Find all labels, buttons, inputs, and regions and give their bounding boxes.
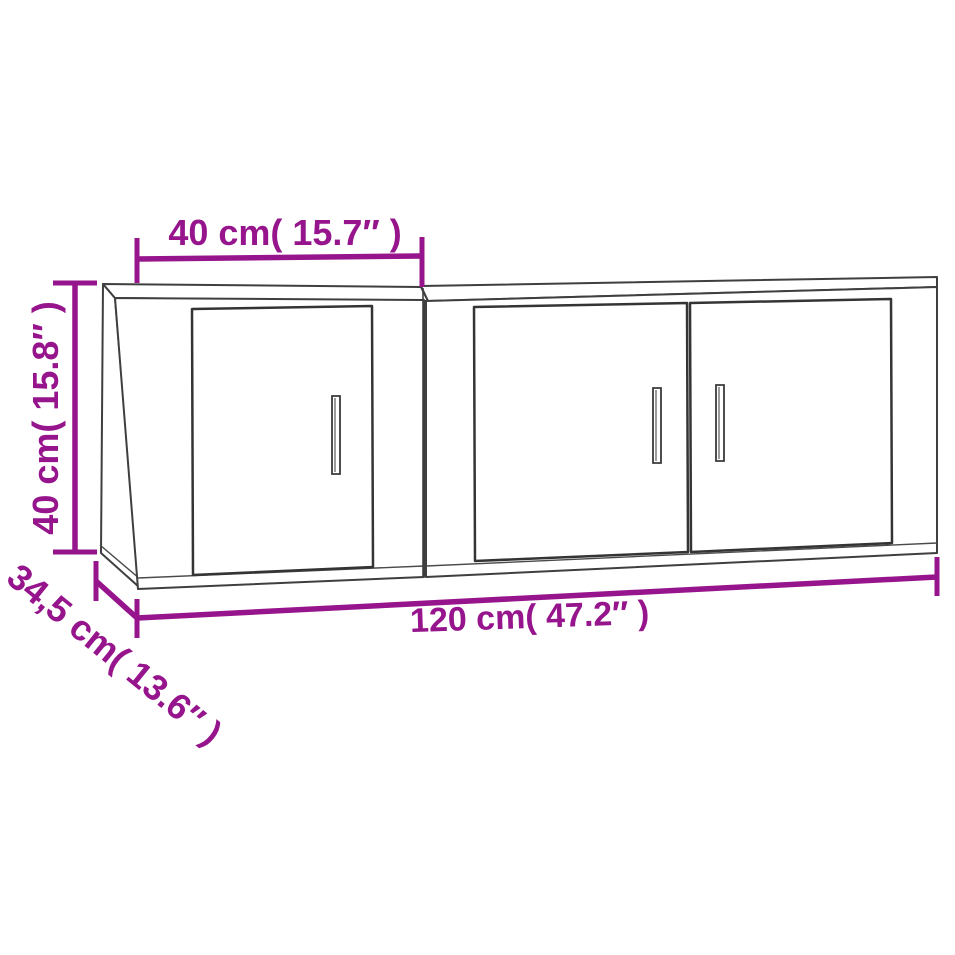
cabinet-right-door-right-handle <box>716 385 724 461</box>
dimension-top-width: 40 cm( 15.7″ ) <box>137 212 422 287</box>
cabinet-left-door-handle <box>332 396 340 474</box>
dimension-left-label: 40 cm( 15.8″ ) <box>25 301 66 534</box>
cabinet-right-door-left-handle <box>653 388 661 463</box>
dimension-top-line <box>137 256 422 259</box>
tv-cabinet-dimension-diagram: 40 cm( 15.7″ ) 40 cm( 15.8″ ) 34,5 cm( 1… <box>0 0 955 955</box>
dimension-left-height: 40 cm( 15.8″ ) <box>25 283 97 552</box>
cabinet-right-drawing <box>421 277 937 578</box>
cabinet-left-door <box>192 306 373 575</box>
dimension-depth-line <box>96 581 137 618</box>
dimension-bottom-label: 120 cm( 47.2″ ) <box>409 594 649 640</box>
dimension-diagram-canvas: 40 cm( 15.7″ ) 40 cm( 15.8″ ) 34,5 cm( 1… <box>0 0 955 955</box>
cabinet-left-drawing <box>100 284 428 589</box>
dimension-top-label: 40 cm( 15.7″ ) <box>168 212 401 253</box>
